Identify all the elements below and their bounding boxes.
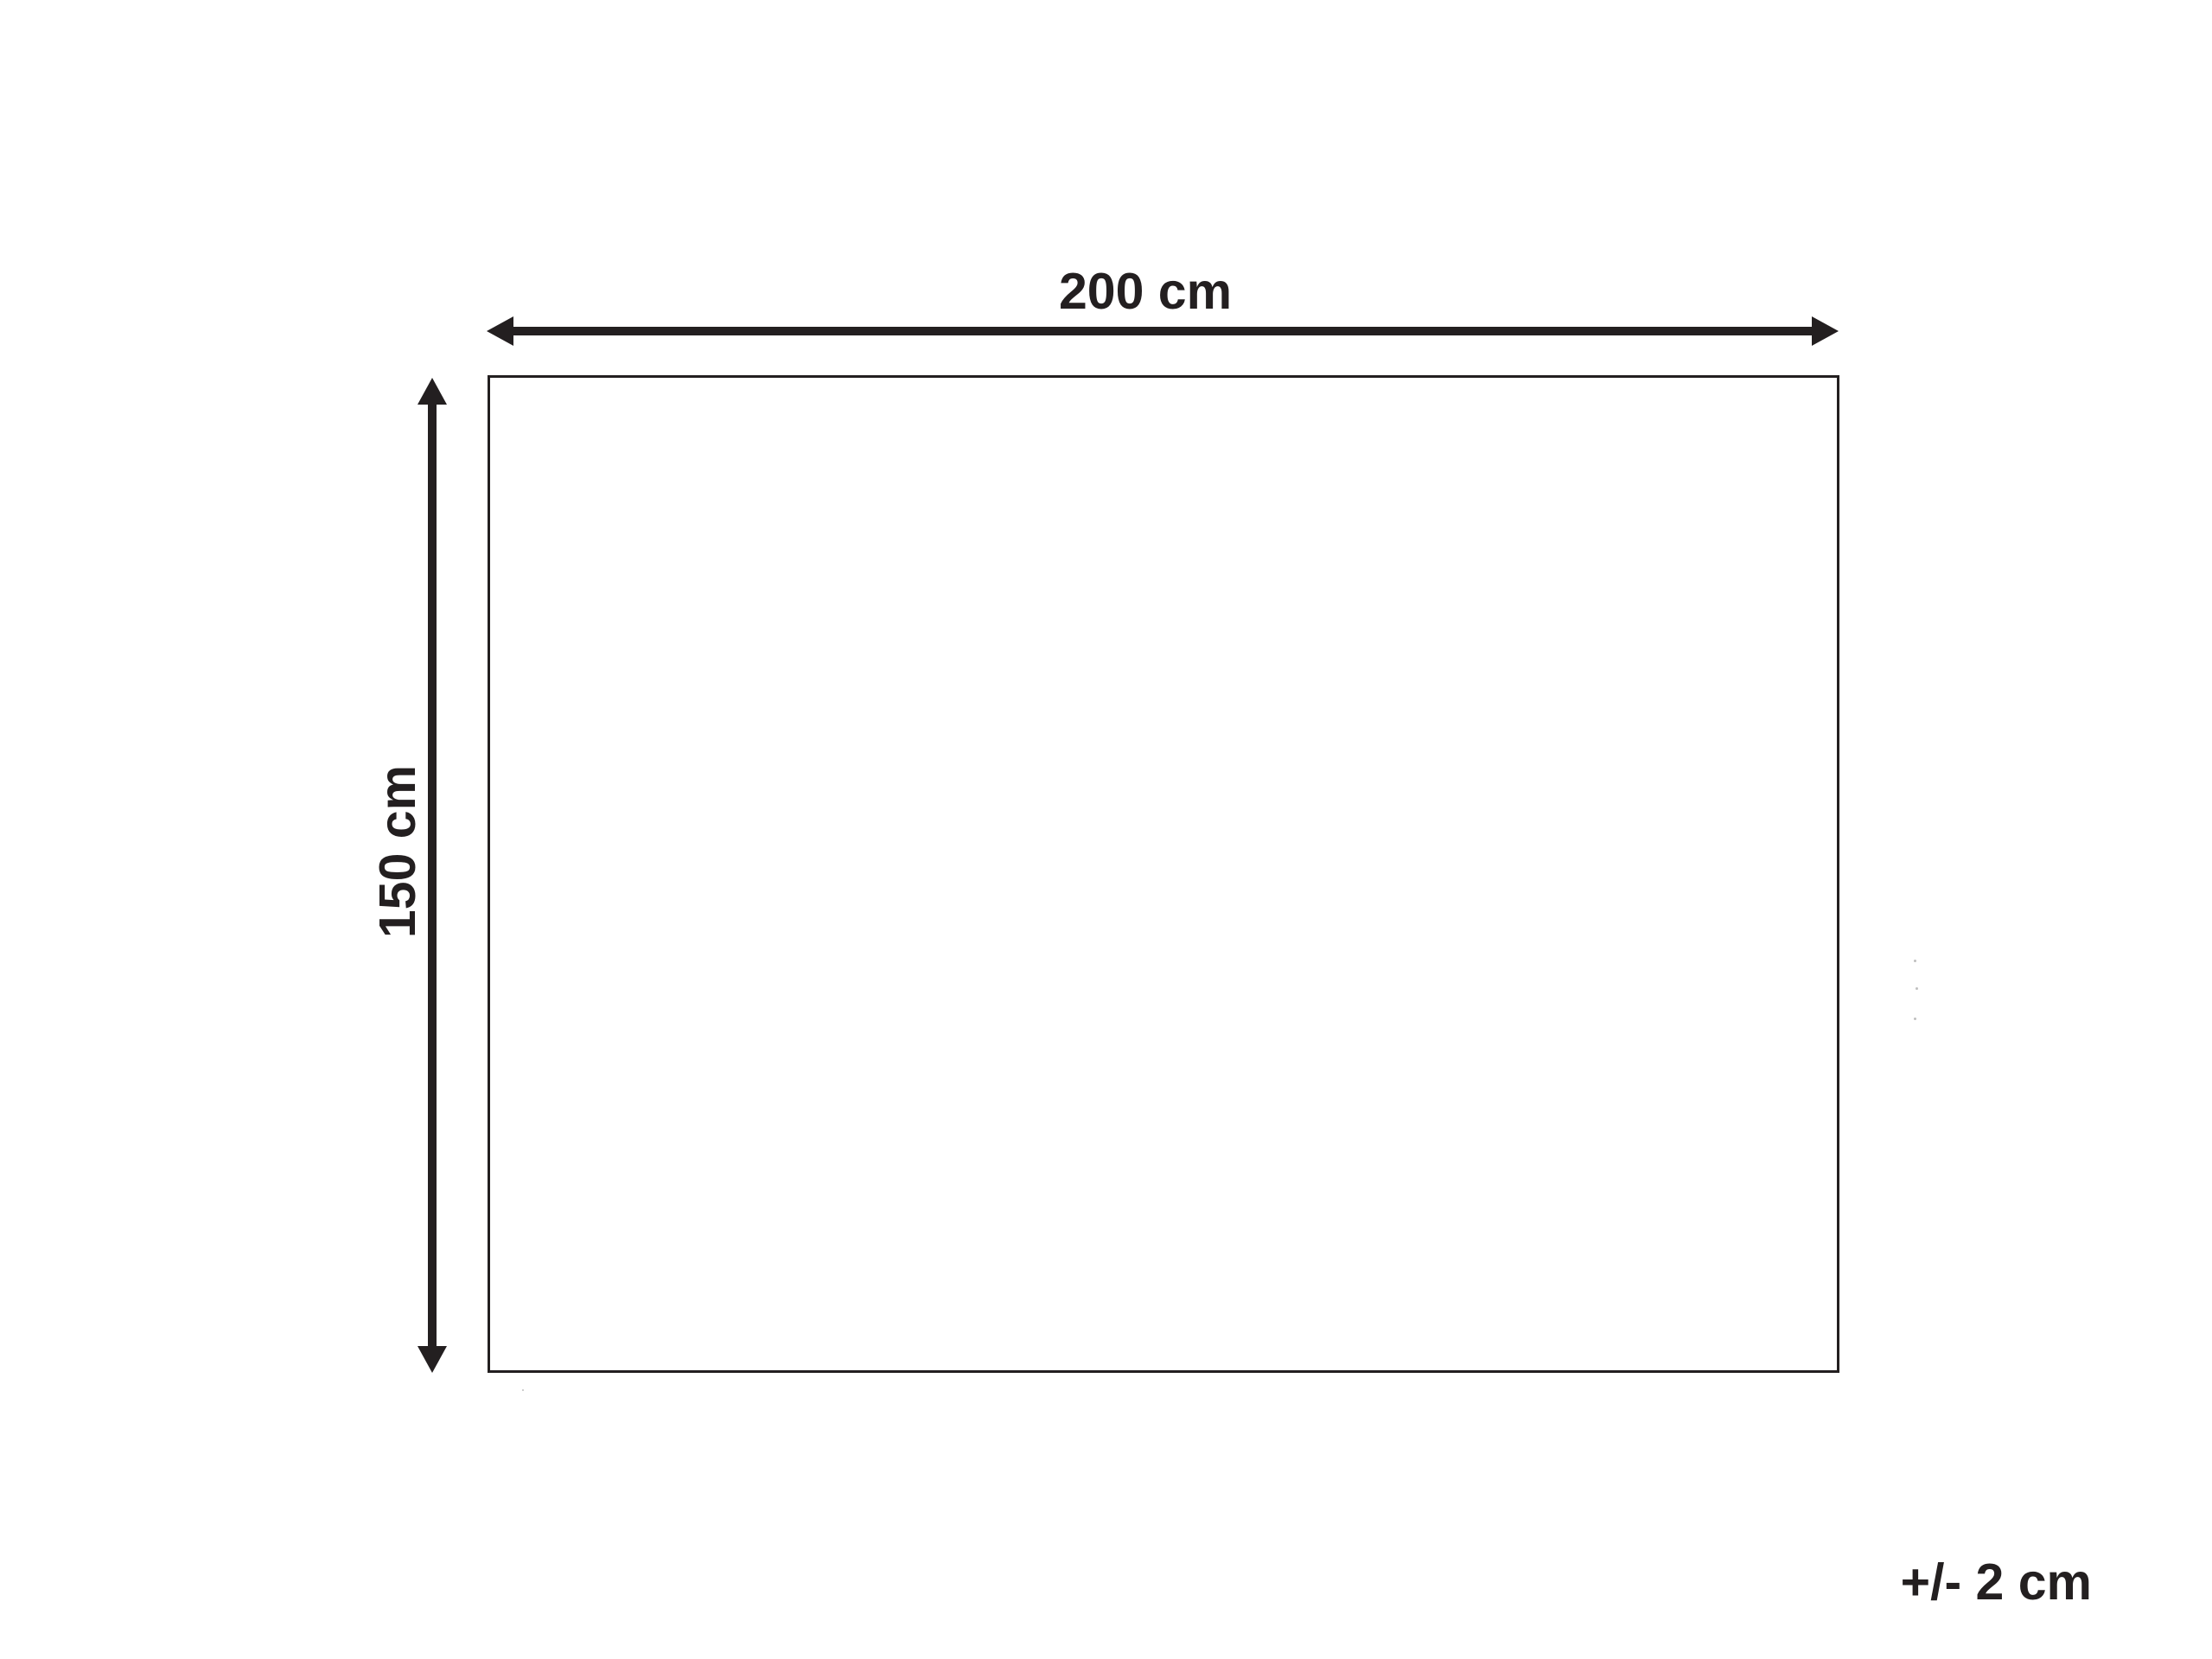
artifact-speck: [1916, 987, 1918, 990]
measurement-arrows: [0, 0, 2212, 1659]
width-dimension-label: 200 cm: [972, 265, 1318, 317]
width-arrow: [487, 316, 1839, 346]
artifact-speck: [1914, 1018, 1916, 1020]
height-dimension-label: 150 cm: [372, 679, 424, 1024]
artifact-speck: [1914, 960, 1916, 962]
artifact-speck: [522, 1389, 524, 1391]
tolerance-label: +/- 2 cm: [1901, 1556, 2092, 1608]
dimension-diagram: 200 cm 150 cm +/- 2 cm: [0, 0, 2212, 1659]
